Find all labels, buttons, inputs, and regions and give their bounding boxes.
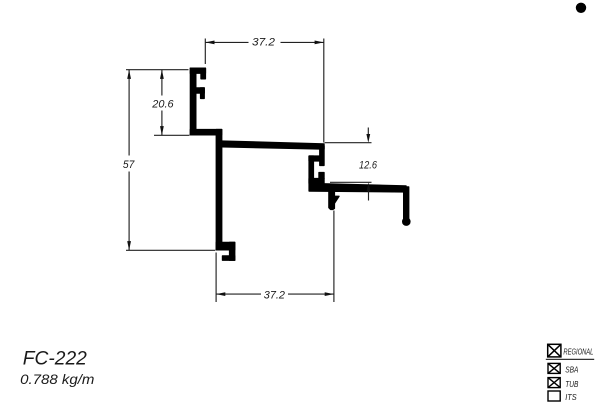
- svg-text:SBA: SBA: [565, 366, 578, 375]
- svg-text:ITS: ITS: [565, 393, 577, 402]
- svg-text:FC-222: FC-222: [23, 349, 87, 370]
- svg-text:37.2: 37.2: [264, 289, 286, 301]
- svg-text:20.6: 20.6: [151, 99, 174, 111]
- svg-text:REGIONAL: REGIONAL: [563, 346, 593, 356]
- svg-text:57: 57: [123, 159, 135, 171]
- svg-text:TUB: TUB: [565, 380, 578, 389]
- svg-text:37.2: 37.2: [252, 37, 276, 49]
- svg-text:0.788 kg/m: 0.788 kg/m: [20, 372, 94, 387]
- svg-text:12.6: 12.6: [359, 159, 378, 171]
